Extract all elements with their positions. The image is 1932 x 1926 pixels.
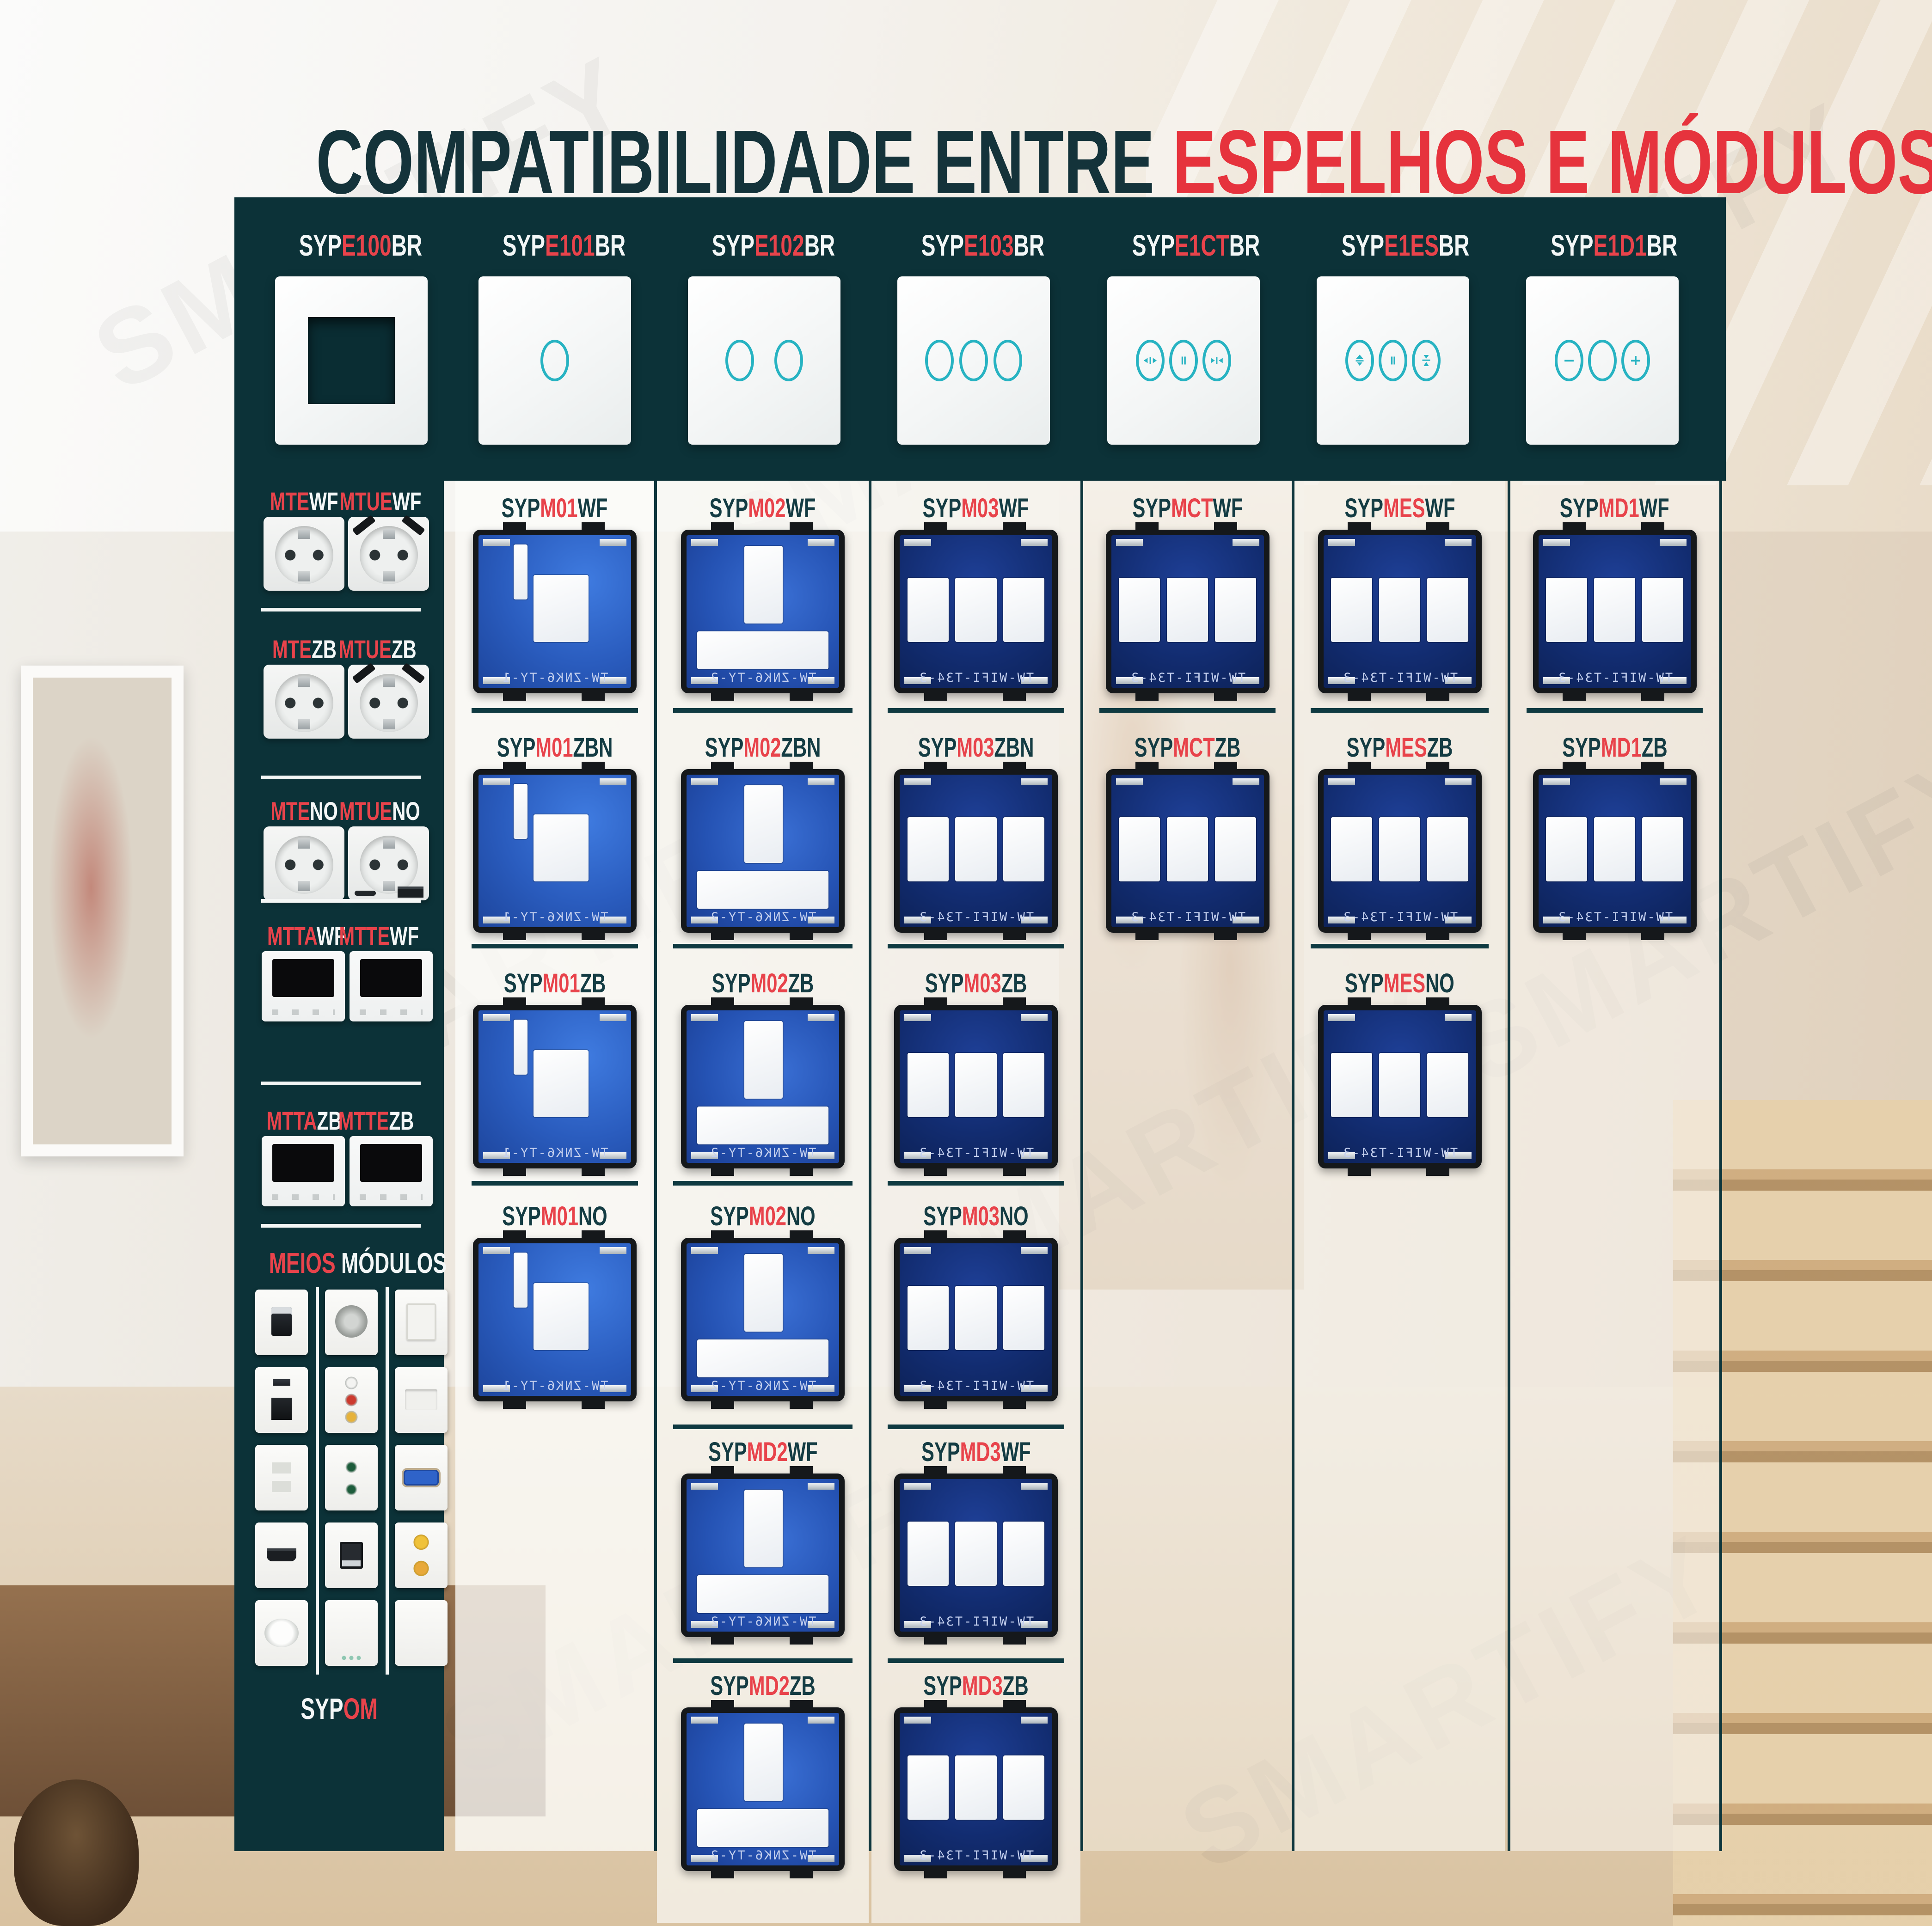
column-divider bbox=[673, 1181, 853, 1186]
schuko-socket-image bbox=[264, 665, 344, 739]
sidebar-divider bbox=[261, 1082, 421, 1085]
page-title: COMPATIBILIDADE ENTRE ESPELHOS E MÓDULOS bbox=[0, 116, 1932, 208]
module-cell: SYPM03ZB TW-WIFI-T34-3 bbox=[871, 970, 1080, 1168]
bg-framed-picture bbox=[21, 666, 184, 1156]
column-divider bbox=[888, 1658, 1064, 1663]
touch-circle-icon bbox=[540, 340, 569, 381]
module-pcb-image: TW-WIFI-T34-3 bbox=[894, 1005, 1058, 1168]
blank-circle-icon bbox=[1588, 340, 1617, 381]
module-label-sypm02zbn: SYPM02ZBN bbox=[682, 734, 843, 762]
module-pcb-image: TW-WIFI-T34-3 bbox=[1106, 769, 1270, 933]
module-label-sypm02zb: SYPM02ZB bbox=[692, 970, 834, 997]
title-red-part: ESPELHOS E MÓDULOS bbox=[1172, 111, 1932, 213]
module-pcb-image: TW-ZNK6-TY-2 bbox=[681, 1474, 845, 1637]
column-border bbox=[869, 481, 871, 1851]
compat-column-sype103: SYPM03WF TW-WIFI-T34-3 SYPM03ZBN TW-WIFI… bbox=[871, 481, 1080, 1923]
module-pcb-image: TW-ZNK6-TY-1 bbox=[473, 530, 637, 693]
module-label-mttewf: MTTEWF bbox=[324, 921, 428, 951]
module-cell: SYPM02ZBN TW-ZNK6-TY-2 bbox=[657, 734, 869, 933]
column-divider bbox=[888, 1181, 1064, 1186]
module-cell: SYPM02ZB TW-ZNK6-TY-2 bbox=[657, 970, 869, 1168]
module-cell: SYPMD2ZB TW-ZNK6-TY-2 bbox=[657, 1672, 869, 1871]
module-label-sypmd2wf: SYPMD2WF bbox=[687, 1438, 839, 1466]
schuko-socket-image bbox=[264, 517, 344, 591]
thermostat-image bbox=[350, 1136, 433, 1206]
module-pcb-image: TW-ZNK6-TY-2 bbox=[681, 1005, 845, 1168]
module-cell: SYPMESZB TW-WIFI-T34-3 bbox=[1294, 734, 1505, 933]
module-cell: SYPMD1WF TW-WIFI-T34-3 bbox=[1510, 495, 1719, 693]
blank-module bbox=[395, 1600, 448, 1666]
module-cell: SYPMESNO TW-WIFI-T34-3 bbox=[1294, 970, 1505, 1168]
column-border bbox=[1292, 481, 1294, 1851]
module-pcb-image: TW-WIFI-T34-3 bbox=[1533, 530, 1697, 693]
module-cell: SYPM03WF TW-WIFI-T34-3 bbox=[871, 495, 1080, 693]
audio-connector-module bbox=[325, 1290, 378, 1355]
module-label-sypm01wf: SYPM01WF bbox=[481, 495, 628, 522]
sidebar-divider bbox=[261, 899, 421, 903]
usb-a-module bbox=[255, 1290, 308, 1355]
module-label-mtueno: MTUENO bbox=[324, 796, 428, 826]
module-cell: SYPMCTWF TW-WIFI-T34-3 bbox=[1083, 495, 1292, 693]
sidebar-grid-separator bbox=[316, 1287, 319, 1675]
module-pcb-image: TW-WIFI-T34-3 bbox=[1318, 769, 1482, 933]
module-pcb-image: TW-ZNK6-TY-2 bbox=[681, 769, 845, 933]
sidebar-divider bbox=[261, 776, 421, 779]
curtain-close-icon bbox=[1202, 340, 1231, 381]
faceplate-shutter bbox=[1317, 276, 1469, 445]
module-pcb-image: TW-WIFI-T34-3 bbox=[894, 1707, 1058, 1871]
faceplate-dimmer bbox=[1526, 276, 1679, 445]
module-label-sypmd1wf: SYPMD1WF bbox=[1539, 495, 1691, 522]
module-cell: SYPM02WF TW-ZNK6-TY-2 bbox=[657, 495, 869, 693]
column-divider bbox=[1311, 708, 1489, 713]
compat-column-sype1ct: SYPMCTWF TW-WIFI-T34-3 SYPMCTZB TW-WIFI-… bbox=[1083, 481, 1292, 1851]
column-border bbox=[1508, 481, 1510, 1851]
module-label-sypmesno: SYPMESNO bbox=[1324, 970, 1476, 997]
compat-column-sype1es: SYPMESWF TW-WIFI-T34-3 SYPMESZB TW-WIFI-… bbox=[1294, 481, 1505, 1851]
faceplate-empty-frame bbox=[275, 276, 428, 445]
module-pcb-image: TW-WIFI-T34-3 bbox=[894, 1238, 1058, 1401]
pause-icon bbox=[1169, 340, 1198, 381]
mirror-label-sype101br: SYPE101BR bbox=[478, 228, 631, 263]
column-border bbox=[1080, 481, 1083, 1851]
curtain-open-icon bbox=[1136, 340, 1165, 381]
module-pcb-image: TW-WIFI-T34-3 bbox=[1533, 769, 1697, 933]
module-cell: SYPMD3WF TW-WIFI-T34-3 bbox=[871, 1438, 1080, 1637]
module-label-sypm03zb: SYPM03ZB bbox=[905, 970, 1047, 997]
mirror-label-sype100br: SYPE100BR bbox=[275, 228, 428, 263]
module-label-sypmeswf: SYPMESWF bbox=[1323, 495, 1477, 522]
shutter-open-icon bbox=[1345, 340, 1374, 381]
module-pcb-image: TW-ZNK6-TY-2 bbox=[681, 1707, 845, 1871]
module-cell: SYPMD2WF TW-ZNK6-TY-2 bbox=[657, 1438, 869, 1637]
column-divider bbox=[472, 944, 638, 948]
module-cell: SYPMD1ZB TW-WIFI-T34-3 bbox=[1510, 734, 1719, 933]
usb-c-usb-a-module bbox=[255, 1367, 308, 1433]
module-cell: SYPMD3ZB TW-WIFI-T34-3 bbox=[871, 1672, 1080, 1871]
module-pcb-image: TW-WIFI-T34-3 bbox=[894, 1474, 1058, 1637]
column-divider bbox=[673, 944, 853, 948]
module-label-sypmctwf: SYPMCTWF bbox=[1111, 495, 1264, 522]
module-pcb-image: TW-WIFI-T34-3 bbox=[1318, 530, 1482, 693]
module-cell: SYPM03NO TW-WIFI-T34-3 bbox=[871, 1203, 1080, 1401]
touch-circle-icon bbox=[925, 340, 954, 381]
compat-column-sype1d1: SYPMD1WF TW-WIFI-T34-3 SYPMD1ZB TW-WIFI-… bbox=[1510, 481, 1719, 1851]
plus-icon bbox=[1621, 340, 1650, 381]
module-pcb-image: TW-ZNK6-TY-2 bbox=[681, 530, 845, 693]
module-cell: SYPM01ZB TW-ZNK6-TY-1 bbox=[455, 970, 654, 1168]
faceplate-curtain bbox=[1107, 276, 1260, 445]
column-divider bbox=[1311, 944, 1489, 948]
module-label-sypm01zbn: SYPM01ZBN bbox=[474, 734, 635, 762]
module-label-sypm01zb: SYPM01ZB bbox=[484, 970, 626, 997]
module-pcb-image: TW-WIFI-T34-3 bbox=[1318, 1005, 1482, 1168]
column-divider bbox=[888, 944, 1064, 948]
sidebar-grid-separator bbox=[386, 1287, 389, 1675]
module-label-mtuewf: MTUEWF bbox=[324, 486, 428, 516]
module-label-sypmd3zb: SYPMD3ZB bbox=[903, 1672, 1049, 1700]
usb-data-module bbox=[325, 1522, 378, 1588]
module-pcb-image: TW-ZNK6-TY-1 bbox=[473, 769, 637, 933]
compat-column-sype102: SYPM02WF TW-ZNK6-TY-2 SYPM02ZBN TW-ZNK6-… bbox=[657, 481, 869, 1923]
half-modules-title: MEIOS MÓDULOS bbox=[234, 1247, 444, 1280]
module-label-sypmd1zb: SYPMD1ZB bbox=[1542, 734, 1688, 762]
half-modules-code-sypom: SYPOM bbox=[234, 1692, 444, 1726]
module-cell: SYPM02NO TW-ZNK6-TY-2 bbox=[657, 1203, 869, 1401]
column-divider bbox=[888, 1425, 1064, 1429]
faceplate-touch-2 bbox=[688, 276, 840, 445]
module-label-sypmctzb: SYPMCTZB bbox=[1114, 734, 1261, 762]
touch-circle-icon bbox=[994, 340, 1022, 381]
frame-hole-icon bbox=[308, 317, 395, 404]
module-label-sypmeszb: SYPMESZB bbox=[1326, 734, 1473, 762]
column-border bbox=[1719, 481, 1722, 1851]
flat-socket-module bbox=[255, 1445, 308, 1510]
blank-plate-module bbox=[395, 1367, 448, 1433]
module-pcb-image: TW-ZNK6-TY-1 bbox=[473, 1238, 637, 1401]
indicator-dots-module bbox=[325, 1600, 378, 1666]
module-cell: SYPMCTZB TW-WIFI-T34-3 bbox=[1083, 734, 1292, 933]
column-divider bbox=[1099, 708, 1276, 713]
thermostat-image bbox=[262, 951, 345, 1021]
sidebar-divider bbox=[261, 608, 421, 611]
bg-vase bbox=[14, 1779, 139, 1926]
hdmi-module bbox=[255, 1522, 308, 1588]
module-cell: SYPM03ZBN TW-WIFI-T34-3 bbox=[871, 734, 1080, 933]
module-label-mtuezb: MTUEZB bbox=[324, 634, 428, 664]
module-cell: SYPM01NO TW-ZNK6-TY-1 bbox=[455, 1203, 654, 1401]
module-pcb-image: TW-WIFI-T34-3 bbox=[894, 769, 1058, 933]
column-divider bbox=[673, 1658, 853, 1663]
module-label-sypmd3wf: SYPMD3WF bbox=[900, 1438, 1052, 1466]
audio-jacks-module bbox=[325, 1445, 378, 1510]
touch-circle-icon bbox=[959, 340, 988, 381]
column-divider bbox=[888, 708, 1064, 713]
schuko-socket-usb-c-a-image bbox=[348, 826, 429, 900]
module-cell: SYPMESWF TW-WIFI-T34-3 bbox=[1294, 495, 1505, 693]
column-border bbox=[654, 481, 657, 1851]
mirror-label-sype1esbr: SYPE1ESBR bbox=[1317, 228, 1469, 263]
schuko-socket-usb-image bbox=[348, 665, 429, 739]
schuko-socket-image bbox=[264, 826, 344, 900]
column-divider bbox=[1527, 708, 1703, 713]
blank-switch-module bbox=[395, 1290, 448, 1355]
module-label-sypm03no: SYPM03NO bbox=[903, 1203, 1049, 1230]
module-label-sypmd2zb: SYPMD2ZB bbox=[690, 1672, 836, 1700]
mirror-label-sype1ctbr: SYPE1CTBR bbox=[1107, 228, 1260, 263]
thermostat-image bbox=[350, 951, 433, 1021]
dial-clock-module bbox=[255, 1600, 308, 1666]
module-pcb-image: TW-WIFI-T34-3 bbox=[894, 530, 1058, 693]
column-divider bbox=[472, 1181, 638, 1186]
mirror-label-sype103br: SYPE103BR bbox=[897, 228, 1050, 263]
thermostat-image bbox=[262, 1136, 345, 1206]
module-pcb-image: TW-ZNK6-TY-1 bbox=[473, 1005, 637, 1168]
module-label-sypm03wf: SYPM03WF bbox=[902, 495, 1049, 522]
sidebar-divider bbox=[261, 1224, 421, 1228]
touch-circle-icon bbox=[774, 340, 803, 381]
module-pcb-image: TW-WIFI-T34-3 bbox=[1106, 530, 1270, 693]
module-label-sypm01no: SYPM01NO bbox=[482, 1203, 628, 1230]
title-dark-part: COMPATIBILIDADE ENTRE bbox=[316, 111, 1172, 213]
column-divider bbox=[472, 708, 638, 713]
pause-icon bbox=[1379, 340, 1407, 381]
rca-av-module bbox=[325, 1367, 378, 1433]
module-cell: SYPM01WF TW-ZNK6-TY-1 bbox=[455, 495, 654, 693]
shutter-close-icon bbox=[1412, 340, 1441, 381]
module-cell: SYPM01ZBN TW-ZNK6-TY-1 bbox=[455, 734, 654, 933]
touch-circle-icon bbox=[725, 340, 754, 381]
faceplate-touch-1 bbox=[478, 276, 631, 445]
column-divider bbox=[673, 1425, 853, 1429]
compat-column-sype101: SYPM01WF TW-ZNK6-TY-1 SYPM01ZBN TW-ZNK6-… bbox=[455, 481, 654, 1851]
module-pcb-image: TW-ZNK6-TY-2 bbox=[681, 1238, 845, 1401]
faceplate-touch-3 bbox=[897, 276, 1050, 445]
vga-module bbox=[395, 1445, 448, 1510]
mirror-label-sype1d1br: SYPE1D1BR bbox=[1526, 228, 1679, 263]
schuko-socket-usb-image bbox=[348, 517, 429, 591]
module-label-sypm02no: SYPM02NO bbox=[690, 1203, 836, 1230]
module-label-sypm03zbn: SYPM03ZBN bbox=[895, 734, 1056, 762]
minus-icon bbox=[1555, 340, 1583, 381]
module-label-mttezb: MTTEZB bbox=[324, 1106, 428, 1136]
sat-f-connectors-module bbox=[395, 1522, 448, 1588]
column-divider bbox=[673, 708, 853, 713]
module-label-sypm02wf: SYPM02WF bbox=[689, 495, 836, 522]
mirror-label-sype102br: SYPE102BR bbox=[688, 228, 840, 263]
